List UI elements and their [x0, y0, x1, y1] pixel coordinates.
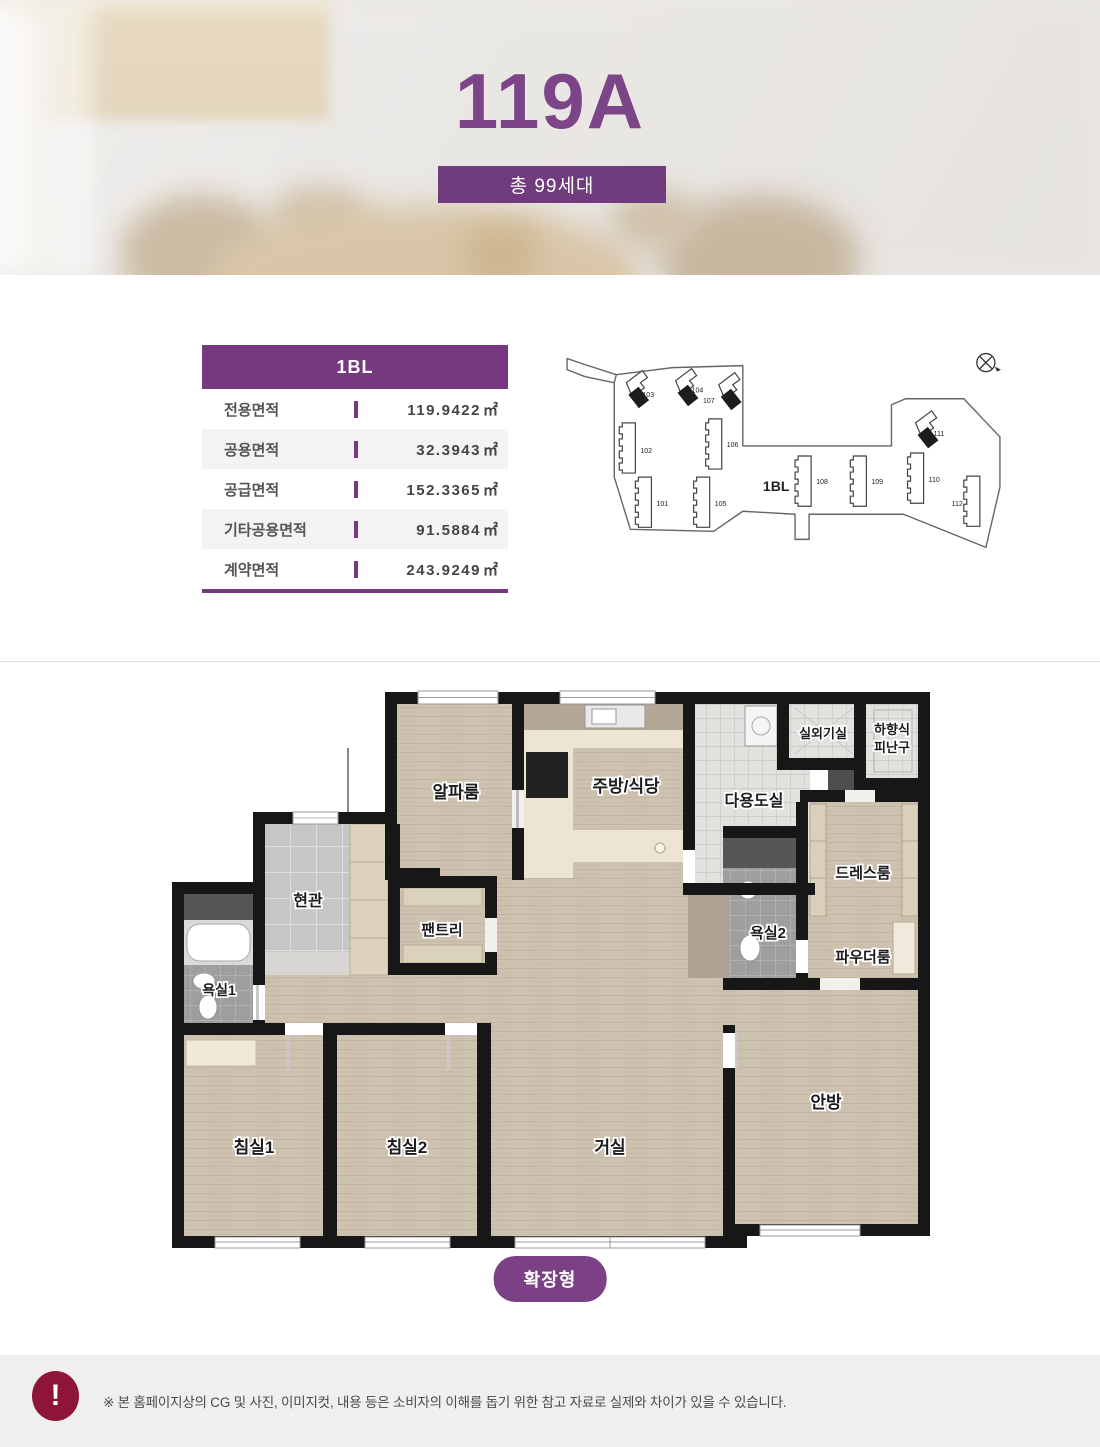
room-label-kitchen: 주방/식당	[592, 777, 660, 796]
svg-text:108: 108	[816, 479, 828, 486]
bath2-closet	[723, 838, 808, 868]
area-label: 공급면적	[224, 479, 336, 500]
svg-text:101: 101	[656, 501, 668, 508]
svg-text:104: 104	[692, 388, 704, 395]
section-divider	[0, 661, 1100, 662]
purple-tick	[354, 401, 358, 418]
room-label-dress: 드레스룸	[835, 865, 890, 882]
area-label: 계약면적	[224, 559, 336, 580]
building-111-highlighted: 111	[916, 411, 945, 449]
svg-text:107: 107	[703, 398, 715, 405]
building-110: 110	[908, 453, 940, 503]
room-label-utility: 다용도실	[725, 792, 784, 810]
table-row: 공급면적 152.3365㎡	[202, 469, 508, 509]
site-plan: 102 106 101 105 108 109 110 112 103 104 …	[552, 338, 1014, 570]
svg-text:105: 105	[715, 501, 727, 508]
room-label-bath2: 욕실2	[750, 925, 786, 942]
svg-text:106: 106	[727, 442, 739, 449]
floor-plan: 알파룸 주방/식당 다용도실 실외기실 하향식 피난구 드레스룸 욕실2 파우더…	[160, 690, 950, 1260]
svg-text:112: 112	[952, 501, 963, 508]
building-109: 109	[850, 456, 883, 506]
area-value: 152.3365㎡	[370, 479, 498, 500]
building-112: 112	[952, 476, 980, 526]
area-label: 공용면적	[224, 439, 336, 460]
pantry-shelf	[403, 888, 482, 906]
powder-counter	[893, 922, 915, 974]
table-row: 기타공용면적 91.5884㎡	[202, 509, 508, 549]
bath1-closet	[184, 894, 253, 920]
area-value: 32.3943㎡	[370, 439, 498, 460]
exclamation-icon: !	[32, 1371, 79, 1421]
room-label-pantry: 팬트리	[421, 922, 462, 939]
disclaimer-text: ※ 본 홈페이지상의 CG 및 사진, 이미지컷, 내용 등은 소비자의 이해를…	[103, 1355, 786, 1447]
table-header-block: 1BL	[202, 345, 508, 389]
room-label-bed1: 침실1	[234, 1137, 275, 1157]
expansion-type-badge: 확장형	[494, 1256, 607, 1302]
compass-icon	[977, 354, 1001, 372]
area-label: 기타공용면적	[224, 519, 336, 540]
table-row: 계약면적 243.9249㎡	[202, 549, 508, 589]
purple-tick	[354, 561, 358, 578]
svg-text:103: 103	[642, 392, 654, 399]
pantry-shelf	[403, 945, 482, 963]
wardrobe	[810, 804, 826, 916]
area-value: 243.9249㎡	[370, 559, 498, 580]
svg-text:110: 110	[929, 477, 940, 484]
room-label-escape-1: 하향식	[874, 722, 910, 737]
area-info-table: 1BL 전용면적 119.9422㎡ 공용면적 32.3943㎡ 공급면적 15…	[202, 345, 508, 593]
header-banner: 119A 총 99세대	[0, 0, 1100, 275]
svg-text:109: 109	[871, 479, 883, 486]
building-106: 106	[706, 419, 739, 469]
room-label-powder: 파우더룸	[835, 949, 890, 966]
bathtub	[187, 924, 250, 961]
footer-disclaimer: ! ※ 본 홈페이지상의 CG 및 사진, 이미지컷, 내용 등은 소비자의 이…	[0, 1355, 1100, 1447]
page: 119A 총 99세대 1BL 전용면적 119.9422㎡ 공용면적 32.3…	[0, 0, 1100, 1447]
purple-tick	[354, 521, 358, 538]
area-value: 119.9422㎡	[370, 399, 498, 420]
room-label-alpha: 알파룸	[433, 783, 480, 802]
banner-photo-table-leg	[465, 225, 535, 275]
room-label-outdoor-unit: 실외기실	[799, 726, 847, 741]
refrigerator	[526, 752, 568, 798]
purple-tick	[354, 441, 358, 458]
household-count-badge: 총 99세대	[438, 166, 666, 203]
building-101: 101	[635, 477, 668, 527]
building-102: 102	[619, 423, 652, 473]
room-label-master: 안방	[810, 1093, 842, 1112]
table-row: 전용면적 119.9422㎡	[202, 389, 508, 429]
area-value: 91.5884㎡	[370, 519, 498, 540]
block-label: 1BL	[763, 478, 790, 494]
bed1-closet	[186, 1040, 256, 1066]
building-107-highlighted: 107	[703, 373, 742, 411]
building-105: 105	[694, 477, 727, 527]
building-103-highlighted: 103	[626, 371, 654, 409]
wardrobe	[902, 804, 918, 916]
building-104-highlighted: 104	[676, 369, 704, 407]
unit-type-title: 119A	[0, 62, 1100, 140]
room-label-bath1: 욕실1	[202, 982, 236, 998]
room-label-escape-2: 피난구	[874, 740, 910, 755]
site-boundary-arm	[567, 359, 616, 383]
area-label: 전용면적	[224, 399, 336, 420]
room-label-entrance: 현관	[293, 891, 323, 910]
room-label-living: 거실	[594, 1138, 625, 1157]
svg-text:102: 102	[640, 448, 652, 455]
table-row: 공용면적 32.3943㎡	[202, 429, 508, 469]
purple-tick	[354, 481, 358, 498]
room-label-bed2: 침실2	[387, 1137, 428, 1157]
building-108: 108	[795, 456, 828, 506]
kitchen-island	[567, 830, 683, 862]
toilet	[199, 995, 217, 1019]
svg-text:111: 111	[934, 431, 945, 438]
washing-machine	[745, 706, 777, 746]
